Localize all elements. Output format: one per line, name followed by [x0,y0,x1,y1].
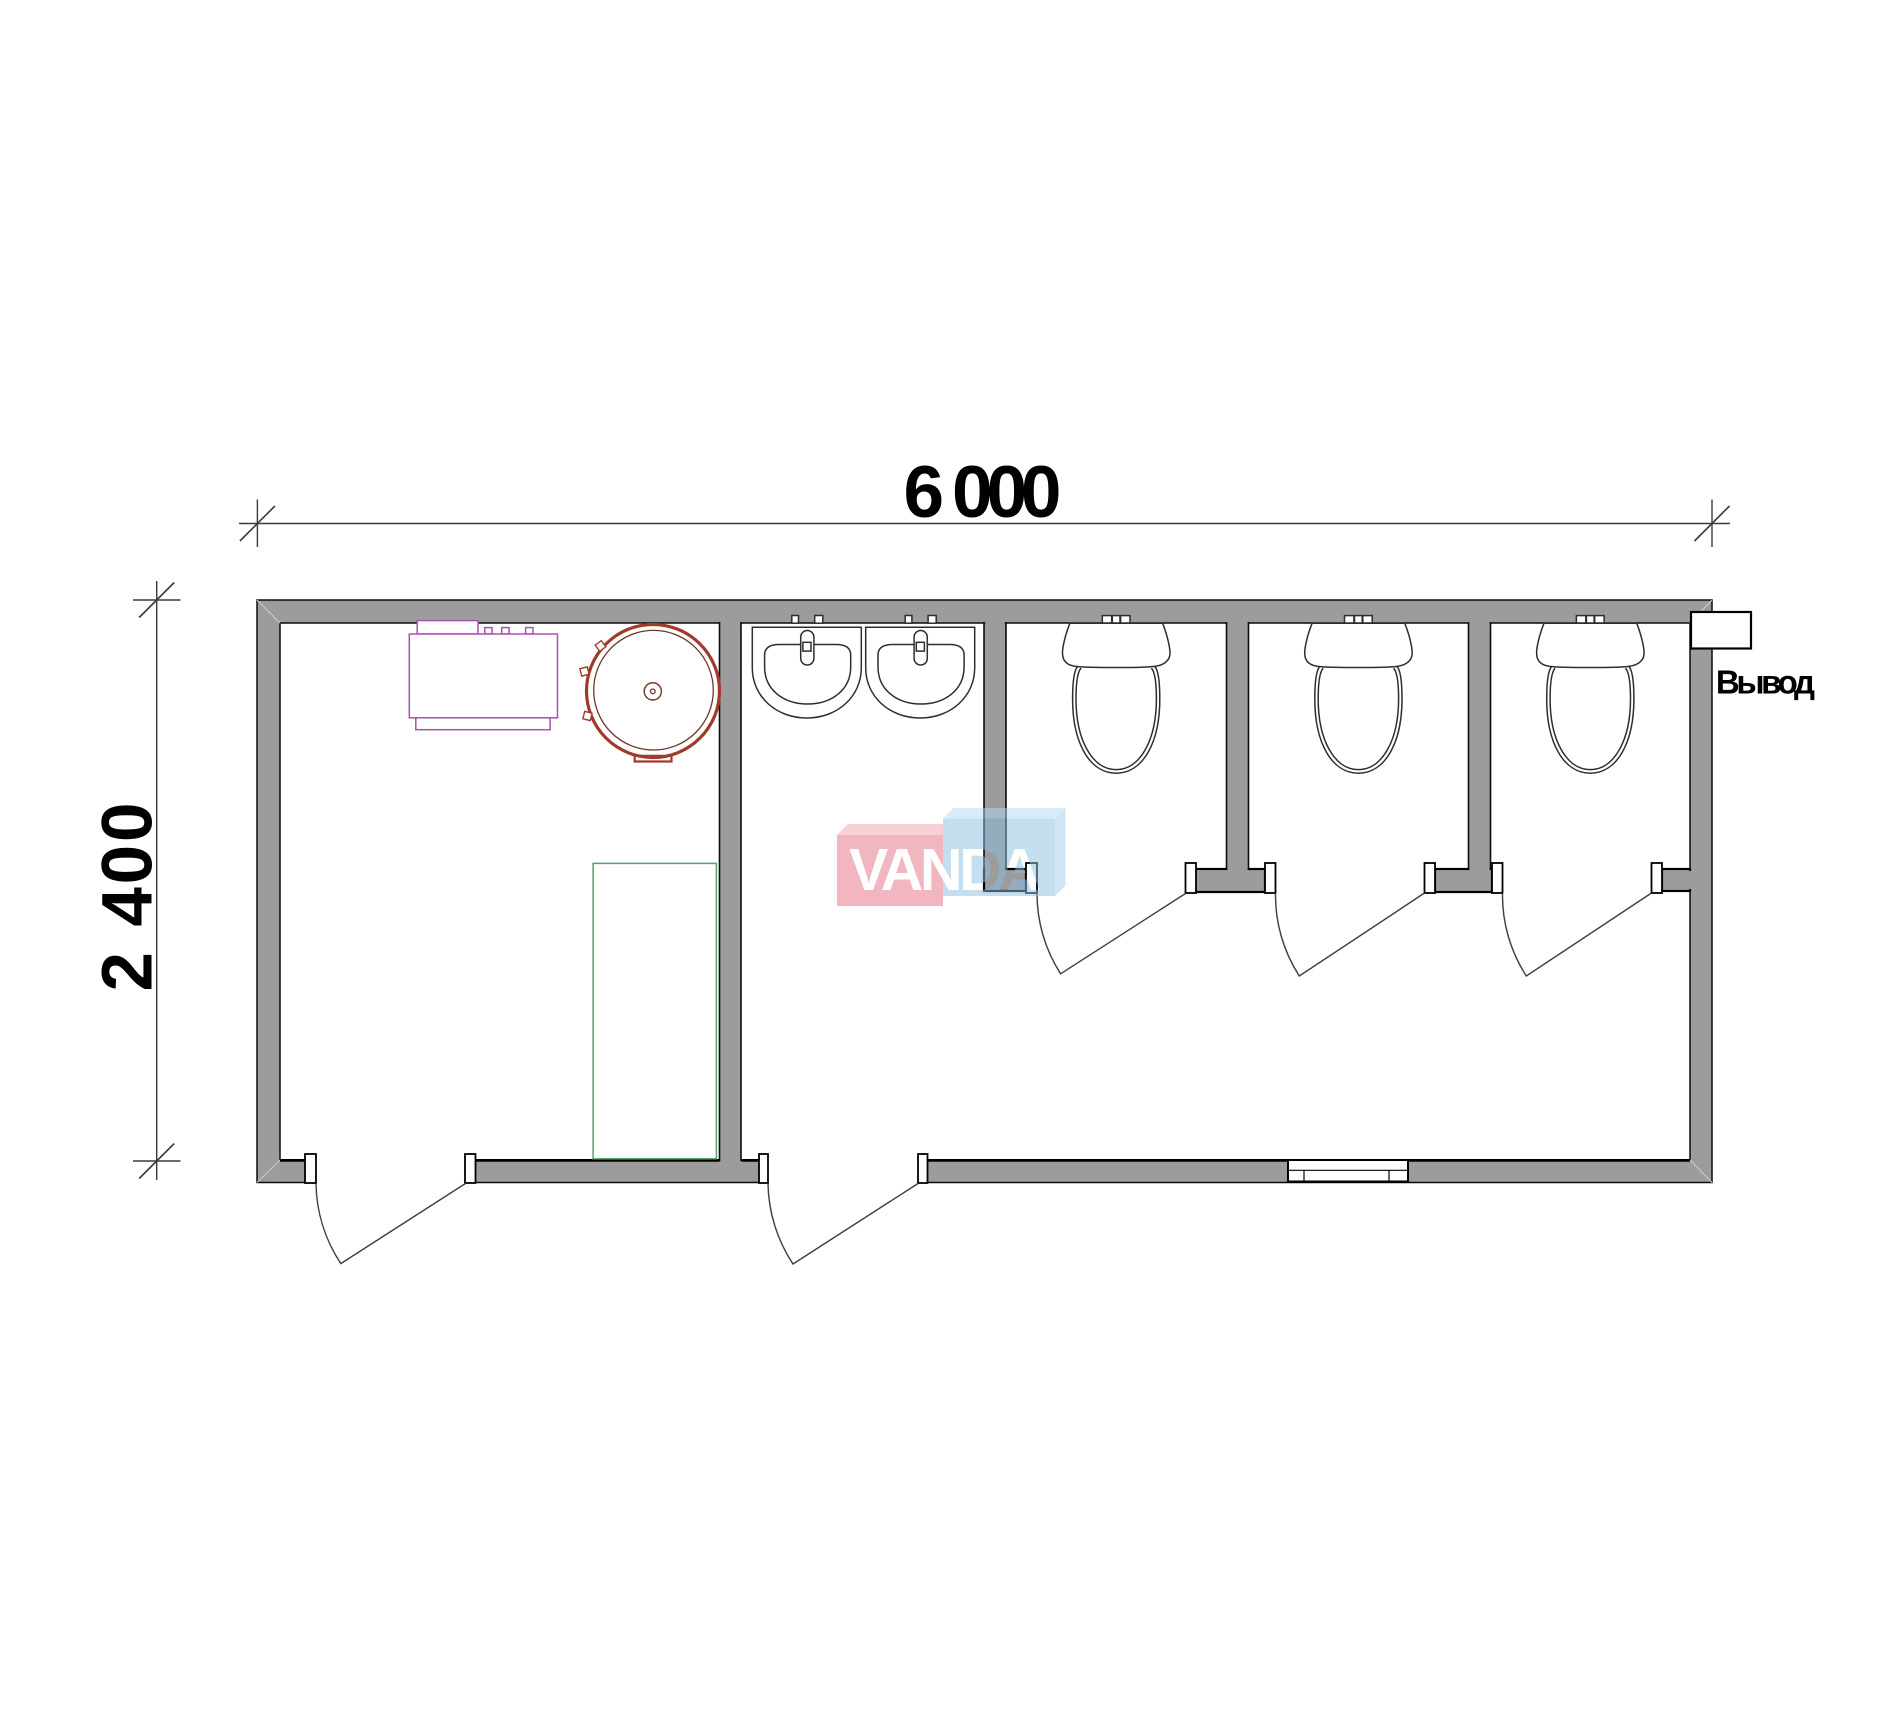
svg-text:2 400: 2 400 [89,803,168,992]
svg-text:Вывод: Вывод [1716,664,1815,701]
svg-text:6 000: 6 000 [904,452,1062,533]
